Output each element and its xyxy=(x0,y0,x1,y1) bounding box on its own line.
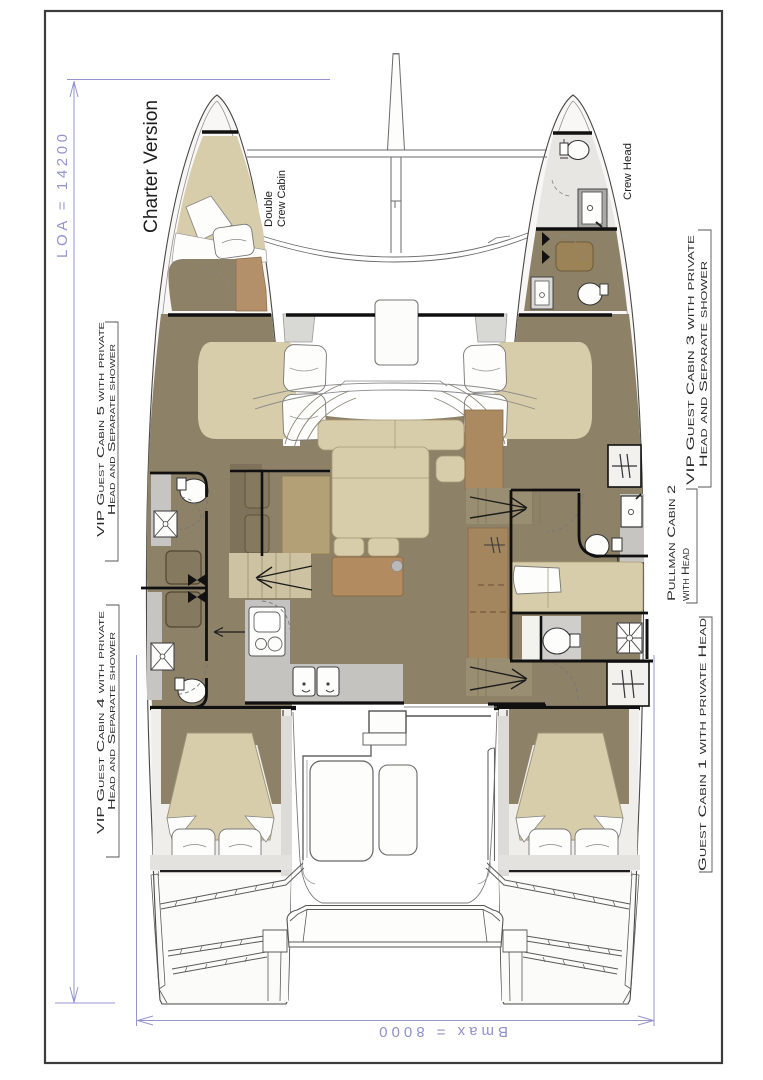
svg-text:Bmax = 8000: Bmax = 8000 xyxy=(375,1023,508,1040)
svg-text:LOA = 14200: LOA = 14200 xyxy=(54,130,71,258)
svg-text:with Head: with Head xyxy=(680,548,692,601)
svg-text:Guest Cabin 1 with private Hea: Guest Cabin 1 with private Head xyxy=(697,618,709,871)
svg-text:Pullman Cabin 2: Pullman Cabin 2 xyxy=(666,485,678,601)
svg-text:Double: Double xyxy=(263,191,275,227)
svg-text:VIP Guest Cabin 3 with private: VIP Guest Cabin 3 with private xyxy=(685,235,697,485)
svg-text:Head and Separate shower: Head and Separate shower xyxy=(106,632,118,810)
svg-text:Head and Separate shower: Head and Separate shower xyxy=(698,261,710,467)
svg-text:Crew Cabin: Crew Cabin xyxy=(276,170,288,227)
svg-text:Crew Head: Crew Head xyxy=(622,143,634,200)
svg-text:Charter Version: Charter Version xyxy=(140,100,162,233)
svg-text:Head and Separate shower: Head and Separate shower xyxy=(106,344,118,515)
